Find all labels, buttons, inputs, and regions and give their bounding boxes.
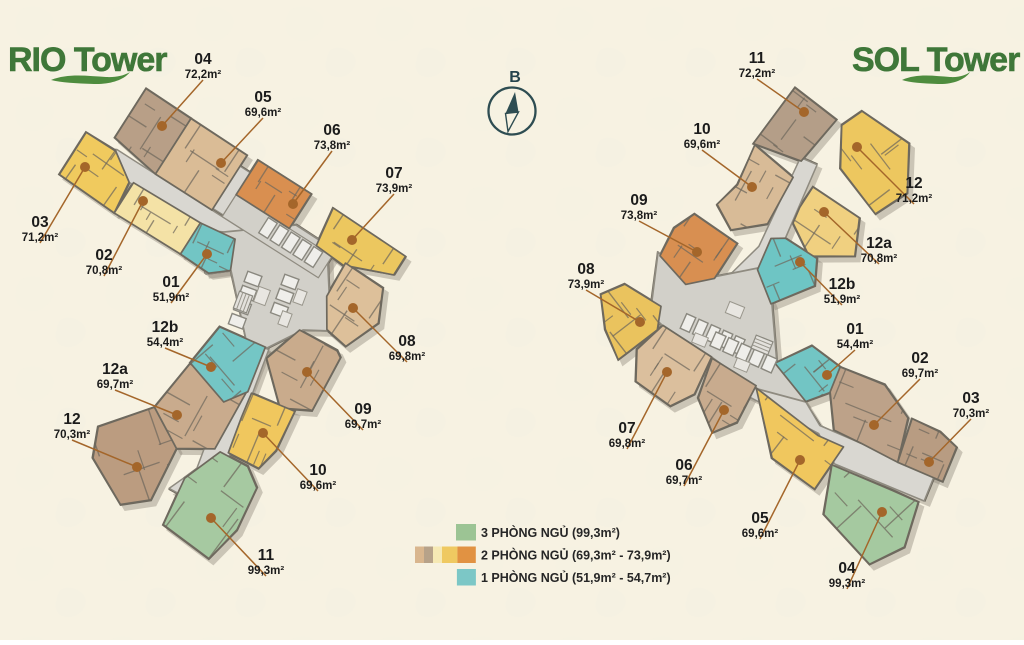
svg-text:71,2m²: 71,2m² xyxy=(22,232,59,244)
svg-text:72,2m²: 72,2m² xyxy=(739,68,776,80)
svg-text:05: 05 xyxy=(254,89,272,106)
svg-text:B: B xyxy=(509,69,521,86)
svg-text:70,3m²: 70,3m² xyxy=(953,408,990,420)
svg-text:08: 08 xyxy=(398,333,416,350)
svg-text:99,3m²: 99,3m² xyxy=(829,578,866,590)
svg-text:12b: 12b xyxy=(829,276,856,293)
svg-text:12a: 12a xyxy=(866,235,892,252)
svg-text:51,9m²: 51,9m² xyxy=(153,292,190,304)
svg-text:73,9m²: 73,9m² xyxy=(568,279,605,291)
svg-text:12b: 12b xyxy=(152,319,179,336)
svg-text:03: 03 xyxy=(962,390,980,407)
svg-text:12: 12 xyxy=(905,175,922,192)
svg-text:09: 09 xyxy=(630,192,648,209)
svg-text:70,8m²: 70,8m² xyxy=(861,253,898,265)
svg-text:69,6m²: 69,6m² xyxy=(742,528,779,540)
svg-text:51,9m²: 51,9m² xyxy=(824,294,861,306)
svg-text:70,3m²: 70,3m² xyxy=(54,429,91,441)
svg-text:02: 02 xyxy=(911,350,928,367)
svg-text:07: 07 xyxy=(618,420,635,437)
svg-text:06: 06 xyxy=(675,457,693,474)
svg-text:07: 07 xyxy=(385,165,402,182)
svg-text:73,8m²: 73,8m² xyxy=(621,210,658,222)
svg-text:12: 12 xyxy=(63,411,80,428)
svg-text:10: 10 xyxy=(309,462,326,479)
svg-text:09: 09 xyxy=(354,401,372,418)
svg-text:06: 06 xyxy=(323,122,341,139)
svg-text:02: 02 xyxy=(95,247,112,264)
svg-text:69,6m²: 69,6m² xyxy=(245,107,282,119)
svg-text:01: 01 xyxy=(162,274,180,291)
svg-text:72,2m²: 72,2m² xyxy=(185,69,222,81)
svg-text:69,7m²: 69,7m² xyxy=(902,368,939,380)
svg-text:73,8m²: 73,8m² xyxy=(314,140,351,152)
svg-text:RIO Tower: RIO Tower xyxy=(8,41,167,79)
svg-text:08: 08 xyxy=(577,261,595,278)
svg-text:54,4m²: 54,4m² xyxy=(147,337,184,349)
svg-text:3 PHÒNG NGỦ (99,3m²): 3 PHÒNG NGỦ (99,3m²) xyxy=(481,525,620,540)
svg-text:05: 05 xyxy=(751,510,769,527)
svg-text:54,4m²: 54,4m² xyxy=(837,339,874,351)
svg-text:03: 03 xyxy=(31,214,49,231)
svg-text:69,6m²: 69,6m² xyxy=(300,480,337,492)
svg-text:1 PHÒNG NGỦ (51,9m² - 54,7m²): 1 PHÒNG NGỦ (51,9m² - 54,7m²) xyxy=(481,570,671,585)
svg-text:04: 04 xyxy=(838,560,856,577)
svg-text:01: 01 xyxy=(846,321,864,338)
svg-text:SOL Tower: SOL Tower xyxy=(852,41,1020,79)
svg-text:69,8m²: 69,8m² xyxy=(389,351,426,363)
svg-text:04: 04 xyxy=(194,51,212,68)
svg-text:10: 10 xyxy=(693,121,710,138)
svg-text:70,8m²: 70,8m² xyxy=(86,265,123,277)
svg-text:71,2m²: 71,2m² xyxy=(896,193,933,205)
svg-text:69,7m²: 69,7m² xyxy=(345,419,382,431)
svg-text:99,3m²: 99,3m² xyxy=(248,565,285,577)
svg-text:11: 11 xyxy=(258,547,275,564)
svg-text:69,7m²: 69,7m² xyxy=(666,475,703,487)
svg-text:12a: 12a xyxy=(102,361,128,378)
svg-text:73,9m²: 73,9m² xyxy=(376,183,413,195)
svg-text:69,8m²: 69,8m² xyxy=(609,438,646,450)
svg-text:69,7m²: 69,7m² xyxy=(97,379,134,391)
svg-text:69,6m²: 69,6m² xyxy=(684,139,721,151)
svg-text:2 PHÒNG NGỦ (69,3m² - 73,9m²): 2 PHÒNG NGỦ (69,3m² - 73,9m²) xyxy=(481,548,671,563)
svg-text:11: 11 xyxy=(749,50,766,67)
